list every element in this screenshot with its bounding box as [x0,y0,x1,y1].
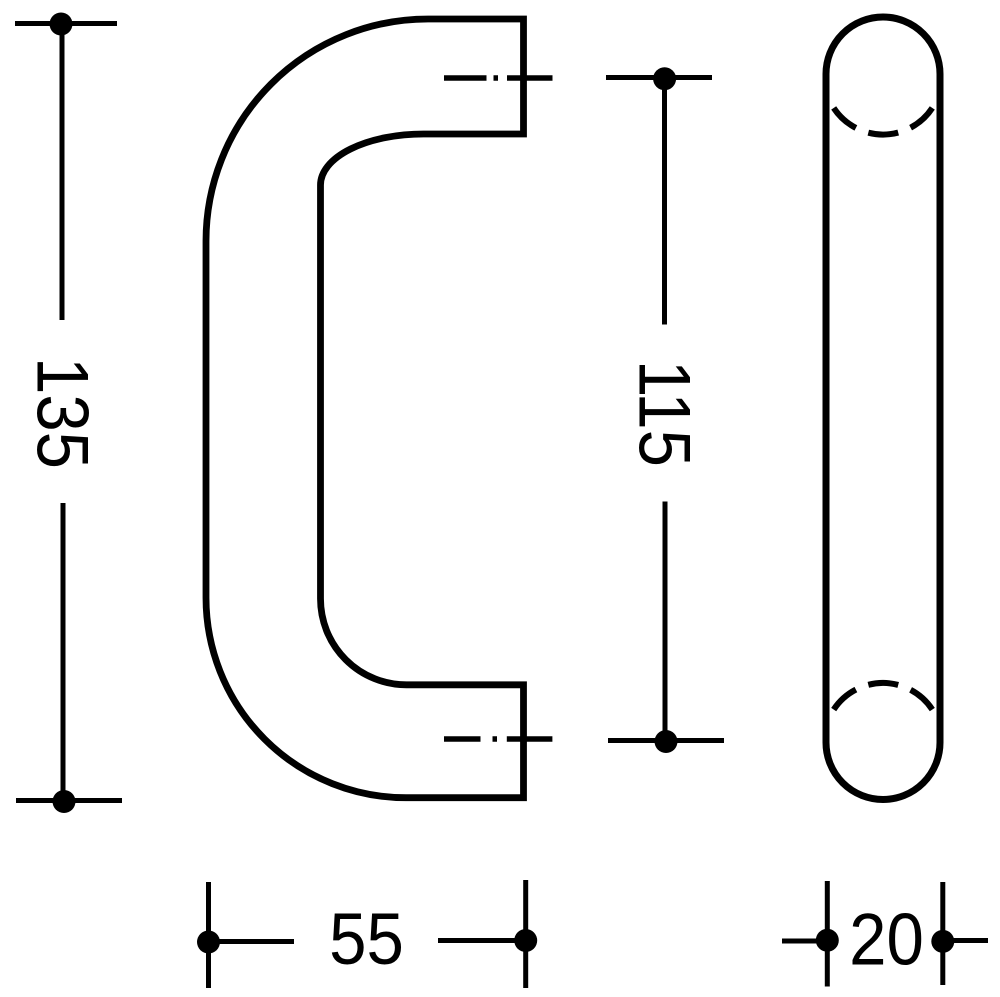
svg-text:55: 55 [329,898,404,979]
svg-text:115: 115 [624,360,705,467]
svg-text:20: 20 [849,899,924,980]
svg-text:135: 135 [22,357,103,469]
